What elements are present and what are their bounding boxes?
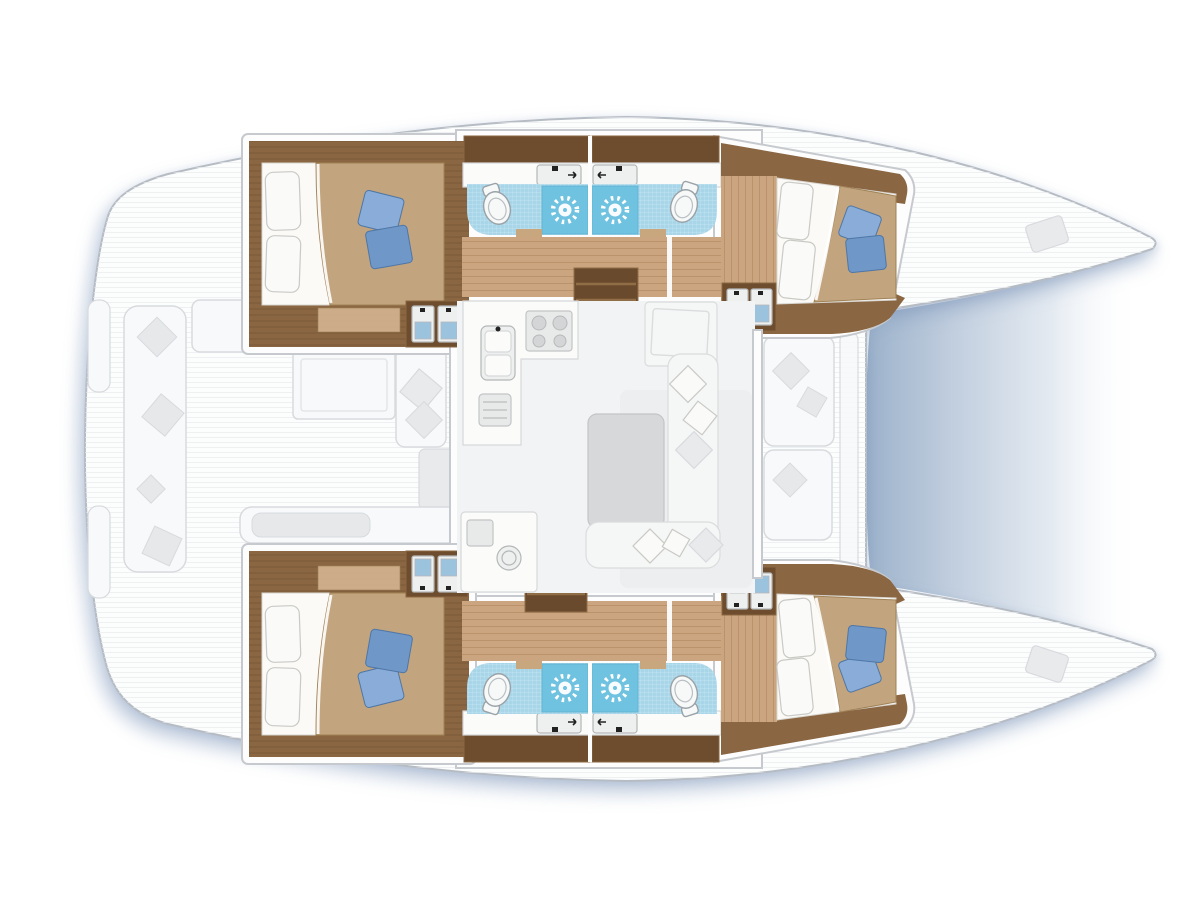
foredeck-bench bbox=[764, 450, 832, 540]
foredeck-bench bbox=[764, 336, 834, 446]
bed-pillow bbox=[778, 597, 816, 658]
bathroom-divider-wall bbox=[588, 663, 592, 762]
wet-bar-appliance bbox=[467, 520, 493, 546]
bed-pillow bbox=[265, 667, 301, 726]
faucet bbox=[446, 308, 451, 312]
bathroom-cabinet bbox=[464, 735, 590, 762]
cockpit-table bbox=[293, 351, 395, 419]
vanity-basin-bowl bbox=[415, 322, 431, 339]
blue-pillow bbox=[365, 225, 413, 270]
bed-pillow bbox=[265, 605, 301, 662]
door-threshold bbox=[667, 601, 672, 661]
faucet bbox=[616, 727, 622, 732]
bathroom-divider-wall bbox=[588, 136, 592, 235]
wet-bar bbox=[461, 512, 537, 592]
forward-crossbeam bbox=[840, 332, 858, 572]
bathroom-cabinet bbox=[592, 735, 719, 762]
faucet bbox=[552, 727, 558, 732]
blue-pillow bbox=[845, 235, 886, 273]
cabin-aft-port bbox=[249, 551, 469, 757]
sink-basin bbox=[485, 355, 511, 376]
bed-pillow bbox=[776, 657, 814, 716]
salon-front-wall bbox=[753, 330, 762, 578]
door-threshold bbox=[516, 229, 542, 237]
bathroom-cabinet bbox=[464, 136, 590, 163]
faucet bbox=[734, 603, 739, 607]
door-threshold bbox=[640, 661, 666, 669]
salon-table bbox=[588, 414, 664, 528]
port-bathrooms bbox=[463, 661, 721, 762]
burner bbox=[554, 335, 566, 347]
salon bbox=[457, 301, 762, 593]
galley-sink bbox=[481, 326, 515, 380]
vanity-basin-bowl bbox=[441, 322, 457, 339]
stern-step bbox=[88, 300, 110, 392]
burner bbox=[532, 316, 546, 330]
burner bbox=[553, 316, 567, 330]
starboard-bathrooms bbox=[463, 136, 721, 237]
faucet bbox=[420, 586, 425, 590]
bathroom-cabinet bbox=[592, 136, 719, 163]
faucet bbox=[496, 327, 501, 332]
cabin-rug bbox=[318, 566, 400, 590]
blue-pillow bbox=[845, 625, 886, 663]
stern-step bbox=[88, 506, 110, 598]
sink-basin bbox=[485, 331, 511, 352]
burner bbox=[533, 335, 545, 347]
faucet bbox=[758, 291, 763, 295]
faucet bbox=[734, 291, 739, 295]
vanity-basin-bowl bbox=[415, 559, 431, 576]
faucet bbox=[420, 308, 425, 312]
bed-pillow bbox=[265, 235, 301, 292]
corridor-planks bbox=[462, 601, 758, 661]
door-threshold bbox=[667, 237, 672, 297]
cooktop bbox=[526, 311, 572, 351]
faucet bbox=[446, 586, 451, 590]
cabin-aft-starboard bbox=[249, 141, 469, 347]
door-threshold bbox=[516, 661, 542, 669]
cabin-rug bbox=[318, 308, 400, 332]
faucet bbox=[758, 603, 763, 607]
bed-pillow bbox=[265, 171, 301, 230]
faucet bbox=[616, 166, 622, 171]
faucet bbox=[552, 166, 558, 171]
bed-pillow bbox=[776, 181, 814, 240]
door-threshold bbox=[640, 229, 666, 237]
vanity-basin-bowl bbox=[754, 305, 769, 322]
round-sink bbox=[497, 546, 521, 570]
catamaran-floor-plan bbox=[0, 0, 1200, 899]
vanity-basin-bowl bbox=[441, 559, 457, 576]
aft-bench-cushion bbox=[252, 513, 370, 537]
blue-pillow bbox=[365, 629, 413, 674]
bed-pillow bbox=[778, 239, 816, 300]
